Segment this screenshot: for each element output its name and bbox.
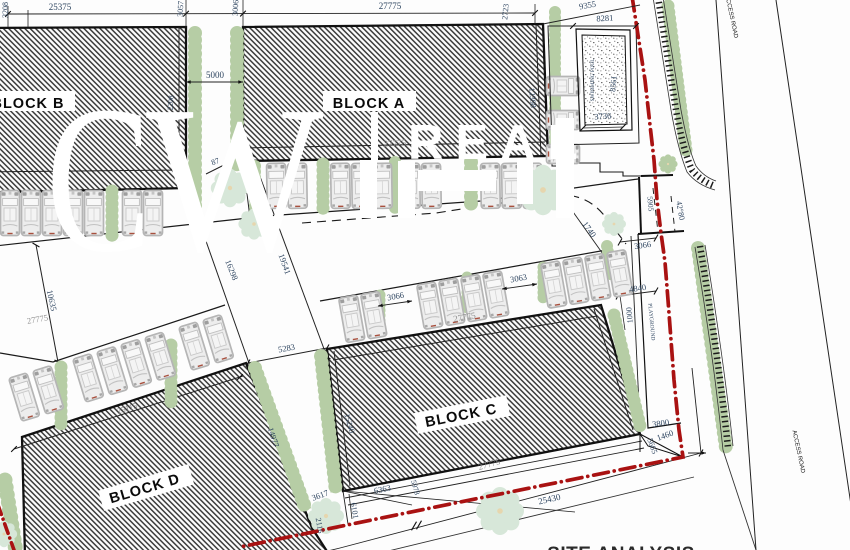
svg-text:27775: 27775 <box>383 137 406 148</box>
svg-text:25375: 25375 <box>49 2 72 12</box>
svg-text:12398: 12398 <box>527 87 538 108</box>
svg-text:BLOCK A: BLOCK A <box>333 96 406 112</box>
svg-text:8281: 8281 <box>596 13 614 24</box>
svg-text:SWIMMING POOL: SWIMMING POOL <box>590 59 596 102</box>
svg-text:1000: 1000 <box>624 307 634 324</box>
svg-text:C: C <box>46 63 151 296</box>
svg-text:3057: 3057 <box>176 1 186 17</box>
svg-text:3006: 3006 <box>231 0 241 16</box>
svg-text:8561: 8561 <box>608 75 618 92</box>
svg-text:SITE ANALYSIS: SITE ANALYSIS <box>547 544 695 550</box>
svg-text:27775: 27775 <box>379 1 402 11</box>
svg-text:3736: 3736 <box>594 110 612 121</box>
svg-text:W: W <box>146 63 323 296</box>
svg-text:3208: 3208 <box>1 2 10 18</box>
svg-text:5905: 5905 <box>645 196 655 212</box>
svg-text:2723: 2723 <box>500 3 510 20</box>
